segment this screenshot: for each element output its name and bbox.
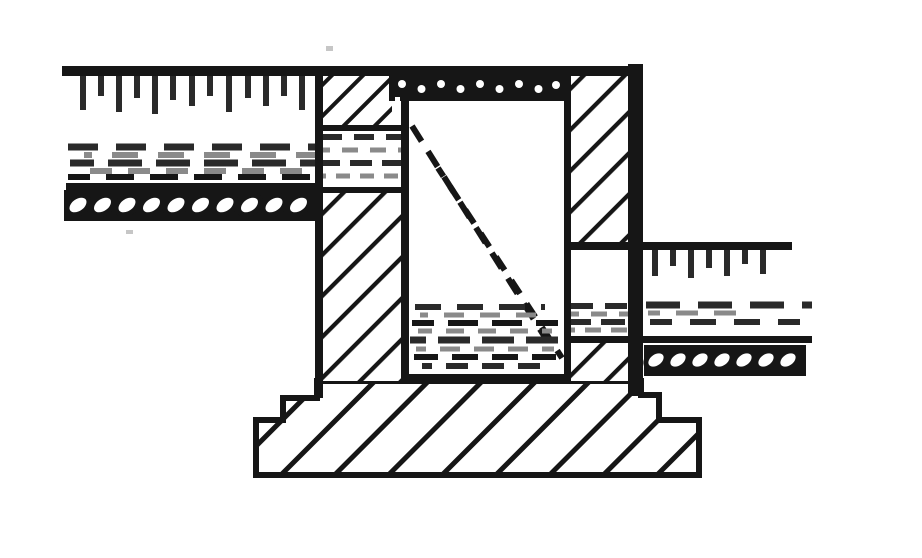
lower-ground-line [564,242,792,250]
right-wall-upper-hatch [567,66,628,247]
cross-section-figure [0,0,922,558]
right-gravel-band [642,345,806,376]
shaft-bottom-line [405,374,567,382]
right-wall-outer-edge [628,64,643,396]
right-wall-lower-hatch [567,343,628,381]
top-cap [392,76,564,97]
right-stratum-baseline [564,336,812,343]
left-wall-outer-edge [315,66,323,398]
shaft-right-edge [564,66,571,382]
left-stratum-baseline [66,183,330,190]
shaft [400,95,571,382]
upper-ground-line [62,66,643,76]
shaft-left-edge [401,95,409,382]
left-gravel-band [63,190,320,221]
cross-section-diagram [0,0,922,558]
left-wall-lower-hatch [320,193,405,381]
